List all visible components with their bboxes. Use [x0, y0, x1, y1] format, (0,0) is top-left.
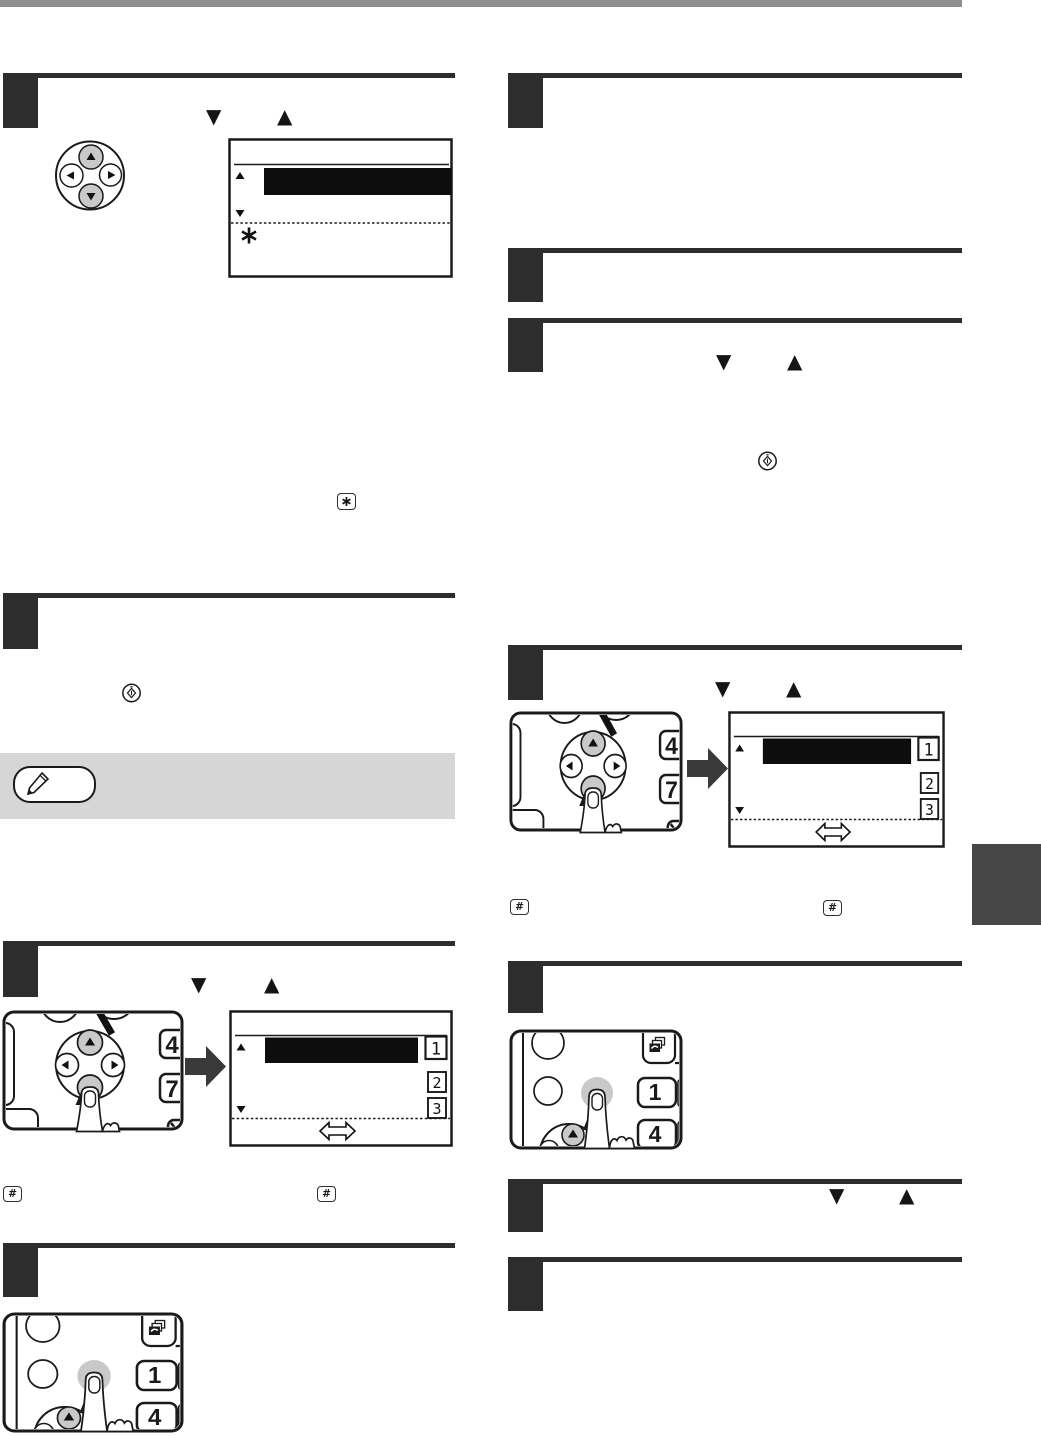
step-number-block	[3, 1245, 38, 1297]
asterisk-key-icon	[337, 493, 356, 510]
left-arrow-key	[560, 755, 582, 778]
left-arrow-key	[60, 164, 83, 187]
svg-text:4: 4	[148, 1404, 161, 1429]
up-arrow-key	[581, 731, 605, 756]
selected-item-bar	[265, 1038, 418, 1064]
hash-glyph: #	[828, 902, 837, 914]
down-triangle-icon: ▼	[829, 1185, 844, 1205]
svg-text:7: 7	[665, 777, 678, 804]
arrow-pad	[53, 139, 127, 213]
start-key-icon	[757, 450, 778, 471]
left-arrow-key	[56, 1054, 79, 1077]
note-badge	[13, 766, 96, 803]
down-arrow-key	[79, 184, 103, 208]
down-triangle-icon: ▼	[715, 678, 730, 698]
step-number-block	[508, 647, 543, 700]
hash-glyph: #	[515, 901, 524, 913]
hash-glyph: #	[8, 1188, 17, 1200]
step-rule	[3, 73, 455, 78]
step-rule	[508, 961, 962, 966]
step-rule	[508, 248, 962, 253]
step-number-block	[508, 963, 543, 1013]
hash-key-icon: #	[510, 899, 529, 915]
up-arrow-key	[78, 1030, 103, 1055]
step-number-block	[508, 1181, 543, 1232]
svg-text:3: 3	[925, 802, 934, 819]
step-number-block	[508, 320, 543, 372]
operation-panel-copy-keypad: 1 4	[2, 1312, 184, 1433]
step-rule	[508, 1179, 962, 1184]
step-number-block	[3, 943, 38, 997]
lcd-screen	[228, 138, 453, 278]
operation-panel-arrow-keypad: 4 7	[2, 1010, 184, 1132]
right-arrow-key	[102, 1054, 125, 1077]
svg-text:4: 4	[649, 1121, 662, 1147]
up-triangle-icon: ▲	[787, 351, 802, 371]
step-number-block	[508, 250, 543, 302]
svg-text:2: 2	[925, 776, 934, 793]
transition-arrow-icon	[687, 748, 729, 790]
svg-text:1: 1	[649, 1079, 662, 1105]
down-triangle-icon: ▼	[206, 106, 221, 126]
up-arrow-key	[79, 145, 103, 169]
selected-item-bar	[264, 168, 452, 195]
selected-item-bar	[763, 739, 911, 765]
right-arrow-key	[100, 164, 122, 186]
step-rule	[3, 1243, 455, 1248]
up-triangle-icon: ▲	[264, 974, 279, 994]
svg-text:3: 3	[432, 1100, 441, 1118]
svg-text:1: 1	[924, 739, 934, 759]
page-top-bar	[0, 0, 962, 7]
start-key-icon	[121, 682, 142, 703]
operation-panel-copy-keypad: 1 4	[509, 1029, 683, 1150]
hash-key-icon: #	[823, 900, 842, 916]
down-triangle-icon: ▼	[716, 351, 731, 371]
up-triangle-icon: ▲	[277, 106, 292, 126]
hash-key-icon: #	[317, 1186, 336, 1202]
svg-text:1: 1	[148, 1362, 161, 1387]
lcd-screen: 1 2 3	[728, 711, 945, 848]
step-number-block	[508, 1259, 543, 1311]
up-triangle-icon: ▲	[786, 678, 801, 698]
down-triangle-icon: ▼	[191, 974, 206, 994]
hash-glyph: #	[322, 1188, 331, 1200]
operation-panel-arrow-keypad: 4 7	[509, 711, 683, 833]
right-arrow-key	[604, 755, 626, 778]
step-rule	[508, 645, 962, 650]
up-arrow-key	[57, 1407, 80, 1429]
manual-page: ▼ ▲ ▼ ▲ ▼ ▲ ▼ ▲ ▼ ▲	[0, 0, 1041, 1436]
step-rule	[508, 73, 962, 78]
list-item-number-boxes: 1 2 3	[918, 738, 938, 820]
step-rule	[3, 593, 455, 598]
step-rule	[3, 941, 455, 946]
step-rule	[508, 1257, 962, 1262]
svg-text:1: 1	[431, 1040, 441, 1060]
up-triangle-icon: ▲	[899, 1185, 914, 1205]
step-number-block	[508, 75, 543, 128]
svg-text:2: 2	[432, 1074, 441, 1092]
step-number-block	[3, 75, 38, 128]
svg-text:4: 4	[665, 733, 678, 760]
list-item-number-boxes: 1 2 3	[426, 1037, 447, 1119]
pencil-icon	[24, 770, 51, 797]
svg-text:7: 7	[165, 1076, 178, 1103]
step-rule	[508, 318, 962, 323]
chapter-side-tab	[972, 844, 1041, 925]
transition-arrow-icon	[185, 1046, 227, 1088]
hash-key-icon: #	[3, 1186, 22, 1202]
up-arrow-key	[562, 1124, 584, 1146]
step-number-block	[3, 595, 38, 649]
svg-text:4: 4	[165, 1032, 179, 1059]
lcd-screen: 1 2 3	[229, 1010, 453, 1147]
